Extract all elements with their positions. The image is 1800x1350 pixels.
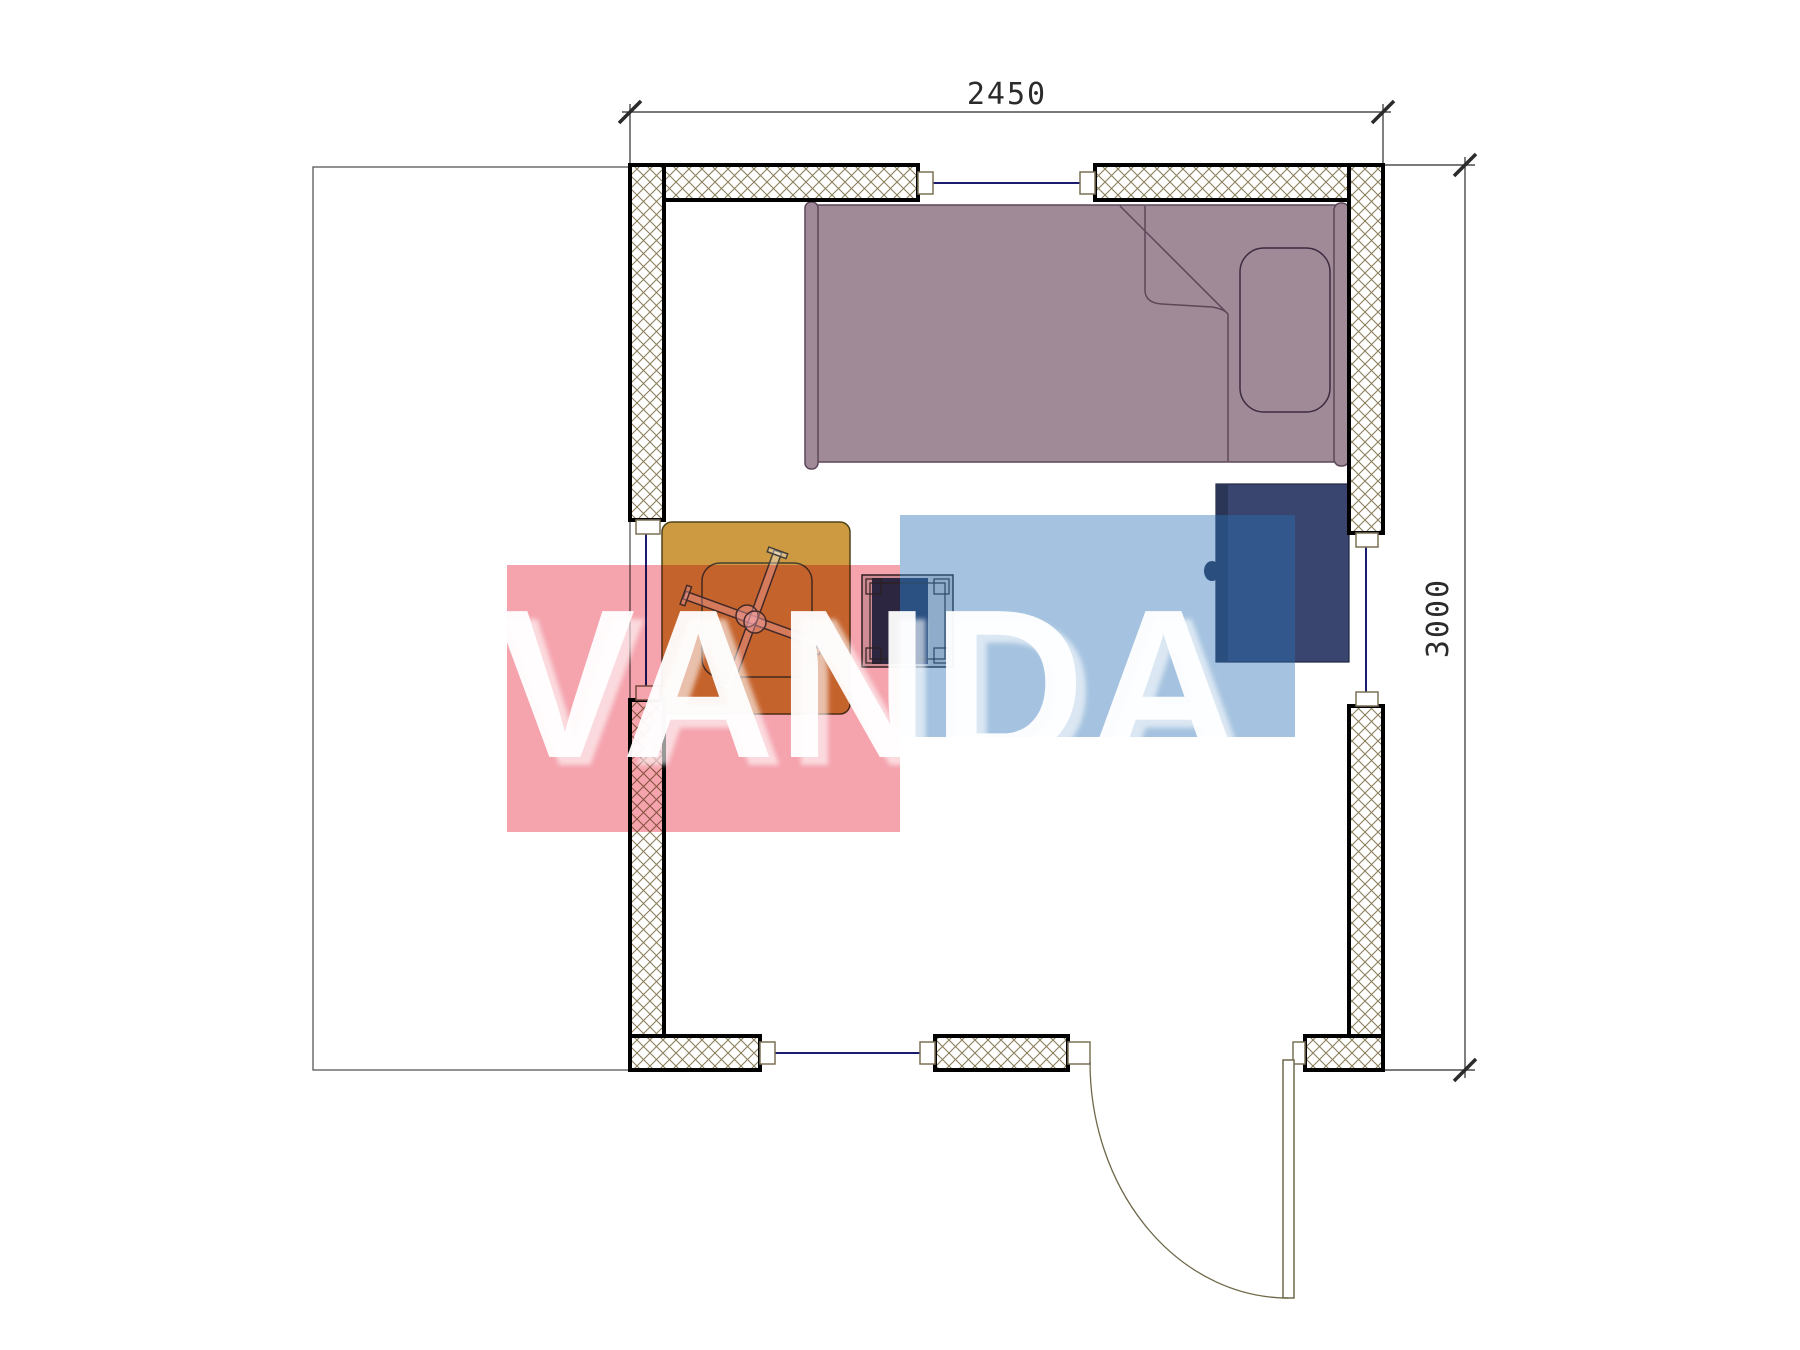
wall-right-upper [1349,165,1383,533]
bed-footboard [805,202,818,469]
door-frame-left [1068,1042,1090,1064]
floor-plan-canvas: 2450 3000 [0,0,1800,1350]
pillow [1240,248,1330,412]
door-swing-arc [1090,1062,1288,1298]
wall-top-right [1095,165,1383,200]
bed-headboard [1334,203,1349,466]
dimension-right-label: 3000 [1421,578,1456,658]
bed [805,202,1349,469]
wall-bottom-left [630,1036,760,1070]
door [1068,1042,1305,1298]
wall-top-left [630,165,918,200]
dimension-top-label: 2450 [967,77,1047,112]
door-frame-right [1293,1042,1305,1064]
wall-bottom-middle [935,1036,1068,1070]
wall-bottom-right [1305,1036,1383,1070]
door-leaf [1283,1060,1294,1298]
wall-right-lower [1349,706,1383,1070]
wall-left-upper [630,165,664,520]
watermark-text: VANDA [494,578,1242,790]
